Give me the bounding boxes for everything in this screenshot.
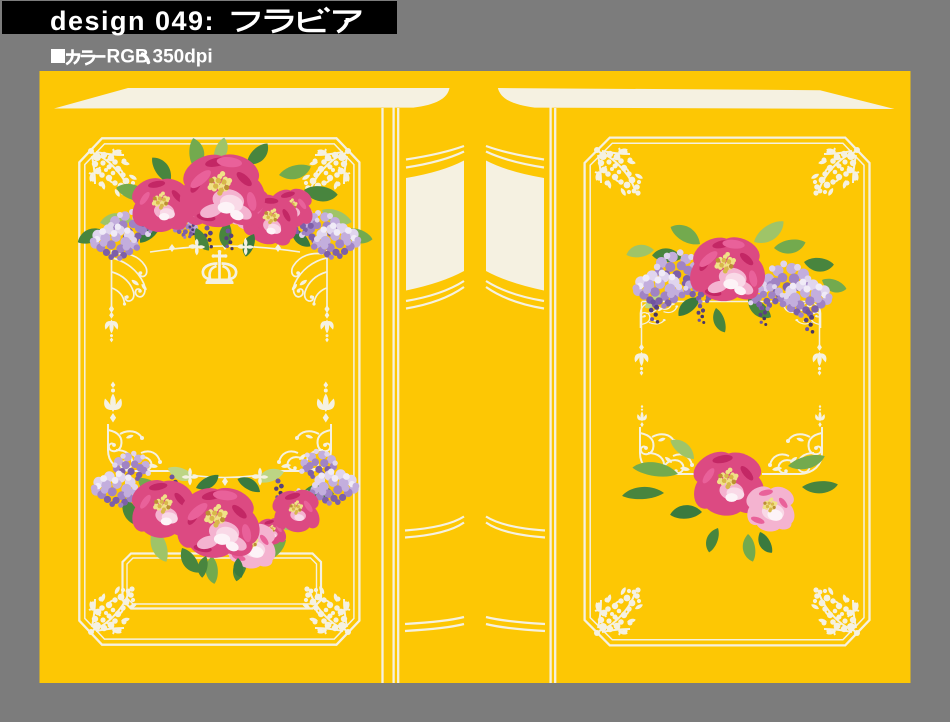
svg-text:RGB: RGB	[107, 47, 149, 68]
svg-text:350dpi: 350dpi	[153, 47, 213, 68]
svg-text:design 049:: design 049:	[50, 6, 215, 36]
